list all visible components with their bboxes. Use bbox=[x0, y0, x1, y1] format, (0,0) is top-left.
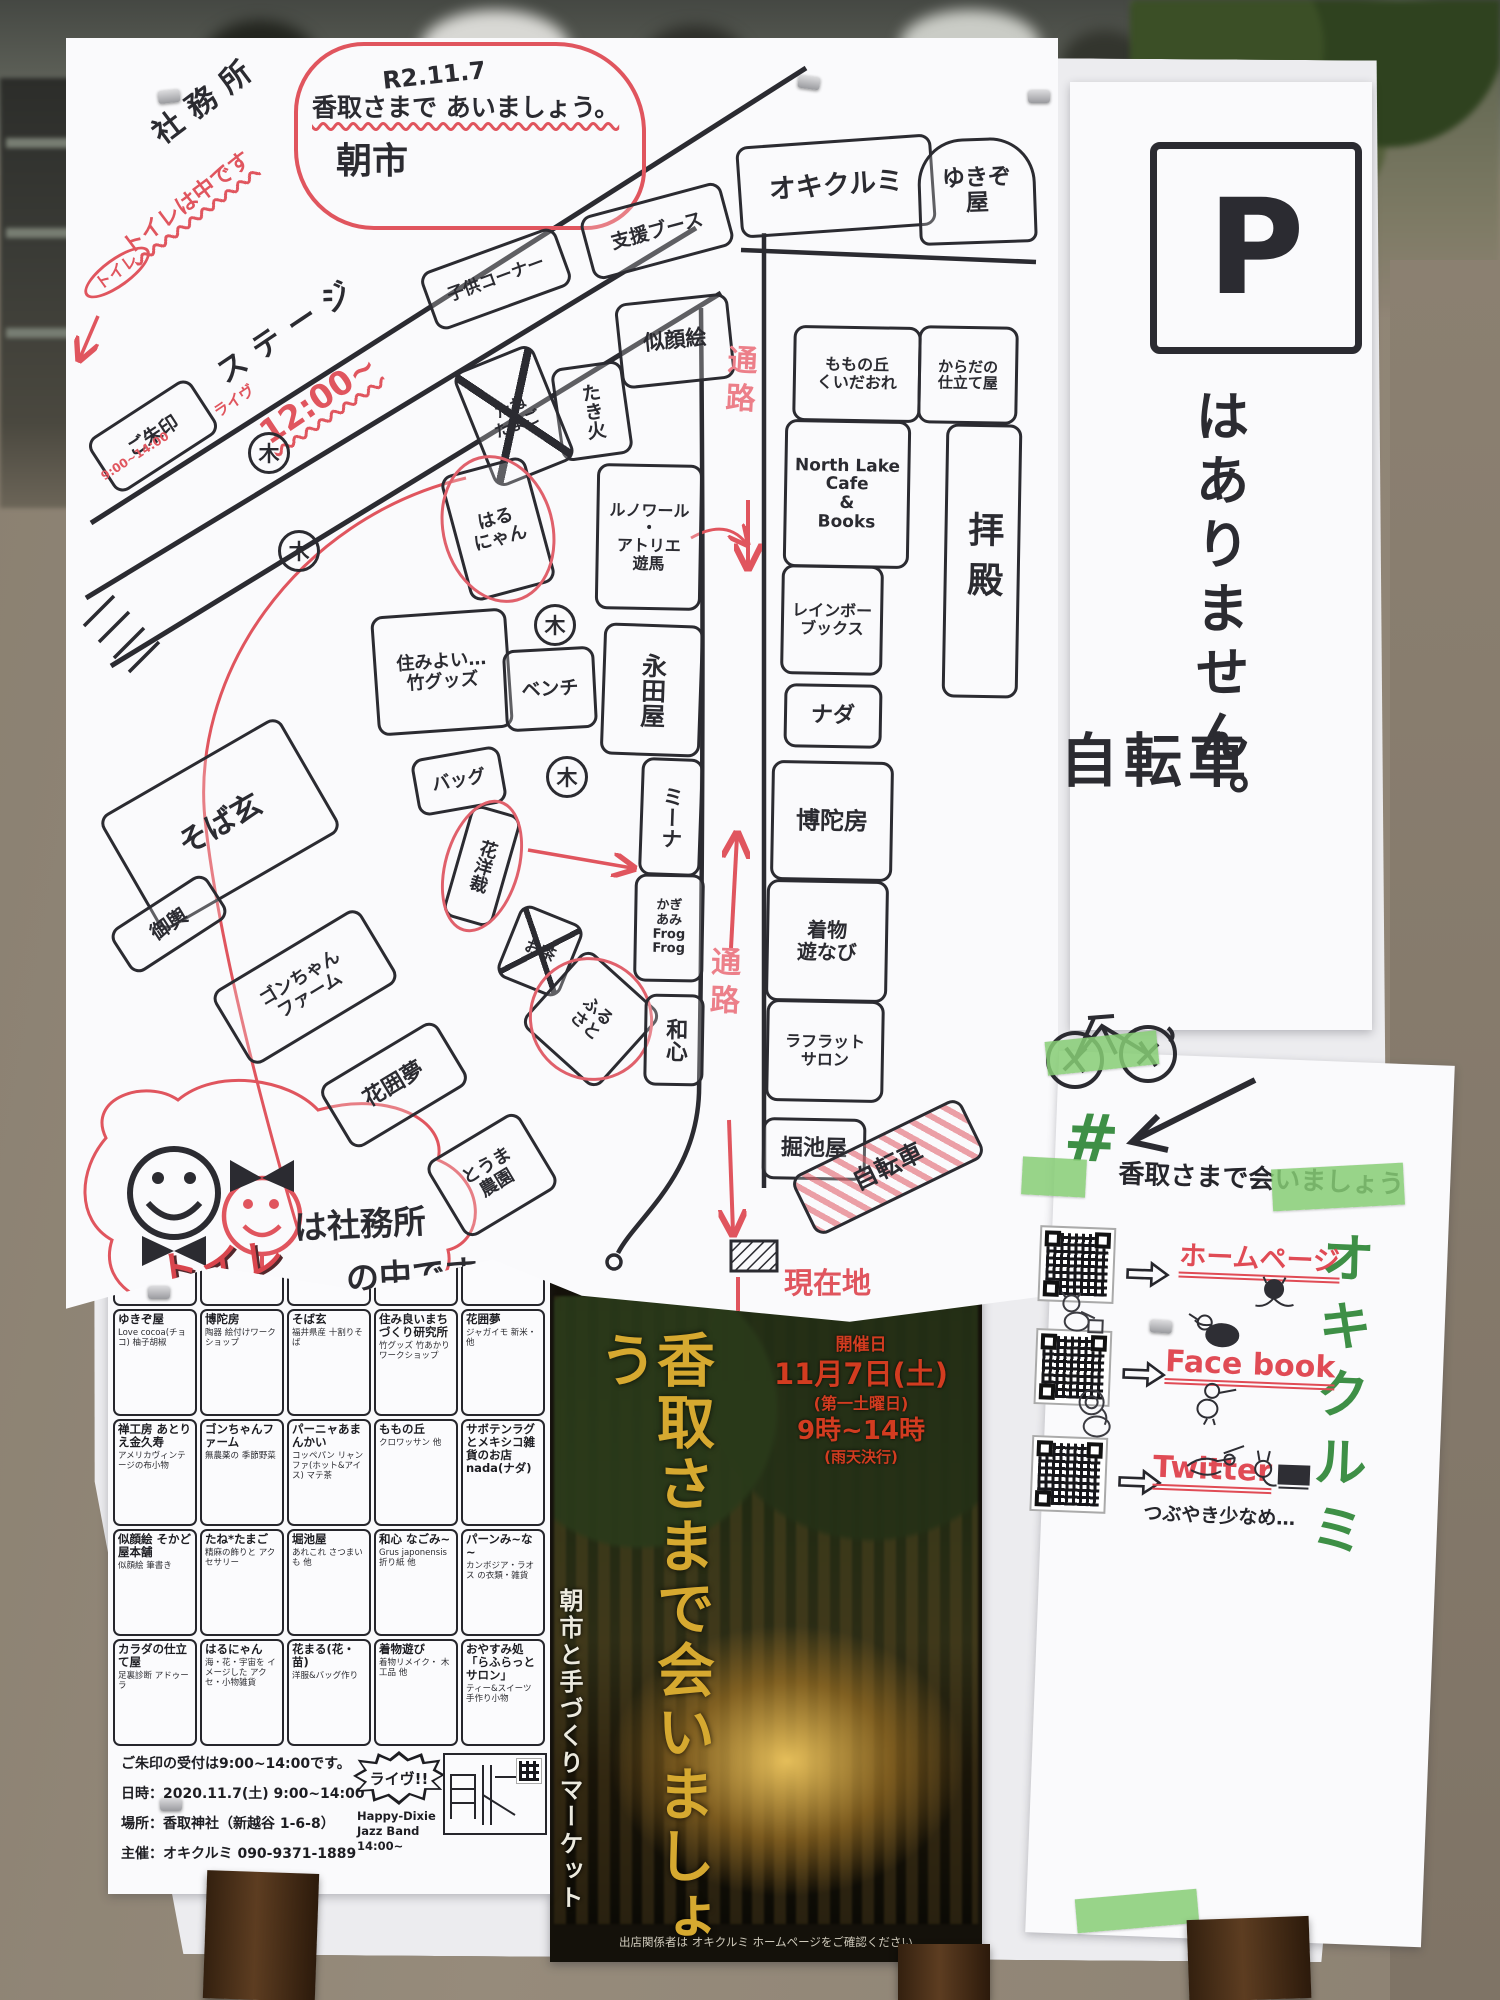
metal-pin bbox=[148, 1286, 170, 1299]
qr-code bbox=[1029, 1435, 1108, 1514]
map-stall: North Lake Cafe & Books bbox=[783, 419, 912, 569]
map-stall: ももの丘 くいだおれ bbox=[792, 325, 922, 423]
map-note: 通路 bbox=[720, 343, 755, 421]
vendor-desc: 足裏診断 アドゥーラ bbox=[118, 1671, 192, 1691]
vendor-desc: クロワッサン 他 bbox=[379, 1438, 453, 1448]
vendor-desc: アメリカヴィンテージの布小物 bbox=[118, 1451, 192, 1471]
no-parking-note: P はありません。 自転車 bbox=[1070, 82, 1372, 1030]
metal-pin bbox=[157, 89, 180, 104]
map-stall: はる にゃん bbox=[439, 455, 558, 603]
vendor-name: ももの丘 bbox=[379, 1423, 453, 1436]
vendor-cell: 着物遊び着物リメイク・ 木工品 他 bbox=[374, 1639, 458, 1746]
map-note: 現在地 bbox=[784, 1268, 871, 1298]
event-subtitle: 朝市 bbox=[336, 132, 628, 184]
live-label: ライヴ!! bbox=[357, 1755, 441, 1801]
violin-crocodile-doodle-icon bbox=[1183, 1436, 1249, 1486]
flute-bird-doodle-icon bbox=[1181, 1378, 1239, 1428]
vendor-name: 堀池屋 bbox=[292, 1533, 366, 1546]
vendor-name: 似顔絵 そかど屋本舗 bbox=[118, 1533, 192, 1559]
map-stall: とうま 農園 bbox=[423, 1109, 561, 1240]
vendor-cell: パーニャあまんかいコッペパン リャンファ(ホット&アイス) マテ茶 bbox=[287, 1419, 371, 1526]
vendor-name: サボテンラグとメキシコ雑貨のお店 nada(ナダ) bbox=[466, 1423, 540, 1475]
vendor-cell: サボテンラグとメキシコ雑貨のお店 nada(ナダ) bbox=[461, 1419, 545, 1526]
map-stall: ゴンちゃん ファーム bbox=[209, 906, 401, 1068]
vendor-cell: 禅工房 あとりえ金久寿アメリカヴィンテージの布小物 bbox=[113, 1419, 197, 1526]
tree-mark: 木 bbox=[248, 432, 290, 474]
trumpet-animal-doodle-icon bbox=[1186, 1304, 1250, 1356]
vendor-cell: 堀池屋あれこれ さつまいも 他 bbox=[287, 1529, 371, 1636]
map-title-cloud: R2.11.7 香取さまで あいましょう。 朝市 bbox=[294, 42, 646, 230]
vendor-name: 着物遊び bbox=[379, 1643, 453, 1656]
poster-date-line: (雨天決行) bbox=[758, 1448, 964, 1468]
footer-line: 日時：2020.11.7(土) 9:00~14:00 bbox=[121, 1783, 365, 1803]
vendor-cell: 和心 なごみ~Grus japonensis 折り紙 他 bbox=[374, 1529, 458, 1636]
vendor-name: たね*たまご bbox=[205, 1533, 279, 1546]
hand-drawn-map: R2.11.7 香取さまで あいましょう。 朝市 子供コーナー支援ブースオキクル… bbox=[66, 38, 1058, 1340]
map-stall: ラフラット サロン bbox=[765, 999, 885, 1103]
vendor-desc: カンボジア・ラオス の衣類・雑貨 bbox=[466, 1561, 540, 1581]
tree-mark: 木 bbox=[278, 530, 320, 572]
vendor-cell: ゴンちゃんファーム無農薬の 季節野菜 bbox=[200, 1419, 284, 1526]
board-leg-middle bbox=[898, 1944, 990, 2000]
dancing-cat-doodle-icon bbox=[1245, 1272, 1303, 1324]
poster-date-line: (第一土曜日) bbox=[758, 1394, 964, 1415]
board-leg-left bbox=[203, 1870, 319, 2000]
vendor-desc: Love cocoa(チョコ) 柚子胡椒 bbox=[118, 1328, 192, 1348]
tree-mark: 木 bbox=[546, 756, 588, 798]
vendor-name: そば玄 bbox=[292, 1313, 366, 1326]
vendor-name: パーニャあまんかい bbox=[292, 1423, 366, 1449]
vendor-name: 博陀房 bbox=[205, 1313, 279, 1326]
vendor-desc: 無農薬の 季節野菜 bbox=[205, 1451, 279, 1461]
live-band: Happy-Dixie Jazz Band 14:00~ bbox=[357, 1809, 436, 1854]
tree-mark: 木 bbox=[534, 604, 576, 646]
vendor-cell: おやすみ処 「らふらっとサロン」ティー&スイーツ 手作り小物 bbox=[461, 1639, 545, 1746]
vendor-desc: ティー&スイーツ 手作り小物 bbox=[466, 1684, 540, 1704]
vendor-name: はるにゃん bbox=[205, 1643, 279, 1656]
metal-pin bbox=[1150, 1319, 1173, 1334]
poster-date-line: 9時~14時 bbox=[758, 1415, 964, 1449]
vendor-name: 花囲夢 bbox=[466, 1313, 540, 1326]
poster-title: 香取さまで会いましょう bbox=[594, 1330, 710, 1954]
footer-line: ご朱印の受付は9:00~14:00です。 bbox=[121, 1753, 351, 1773]
mini-qr-code bbox=[516, 1758, 542, 1784]
map-stall: ベンチ bbox=[502, 646, 598, 733]
map-stall: ミーナ bbox=[638, 757, 704, 877]
green-tape bbox=[1021, 1156, 1087, 1197]
piano-rabbit-doodle-icon bbox=[1248, 1446, 1316, 1502]
vendor-cell: ももの丘クロワッサン 他 bbox=[374, 1419, 458, 1526]
vendor-desc: あれこれ さつまいも 他 bbox=[292, 1548, 366, 1568]
vendor-desc: 精麻の飾りと アクセサリー bbox=[205, 1548, 279, 1568]
event-date: R2.11.7 bbox=[381, 41, 629, 95]
vendor-cell: 花囲夢ジャガイモ 新米・他 bbox=[461, 1309, 545, 1416]
map-stall: レインボー ブックス bbox=[780, 564, 884, 676]
map-note: トイレ bbox=[77, 238, 157, 307]
drummer-animal-doodle-icon bbox=[1050, 1289, 1110, 1343]
vendor-cell: 花まる(花・苗)洋服&バッグ作り bbox=[287, 1639, 371, 1746]
poster-subtitle: 朝市と手づくりマーケット bbox=[552, 1588, 587, 1928]
vendor-cell: はるにゃん海・花・宇宙を イメージした アクセ・小物雑貨 bbox=[200, 1639, 284, 1746]
vendor-desc: 福井県産 十割りそば bbox=[292, 1328, 366, 1348]
vendor-name: おやすみ処 「らふらっとサロン」 bbox=[466, 1643, 540, 1682]
vendor-cell: ゆきぞ屋Love cocoa(チョコ) 柚子胡椒 bbox=[113, 1309, 197, 1416]
vendor-desc: 竹グッズ 竹あかりワークショップ bbox=[379, 1341, 453, 1361]
vendor-name: 花まる(花・苗) bbox=[292, 1643, 366, 1669]
map-stall: 拝殿 bbox=[942, 423, 1023, 698]
parking-letter: P bbox=[1150, 142, 1362, 354]
vendor-name: カラダの仕立て屋 bbox=[118, 1643, 192, 1669]
vendor-desc: コッペパン リャンファ(ホット&アイス) マテ茶 bbox=[292, 1451, 366, 1481]
vendor-name: ゴンちゃんファーム bbox=[205, 1423, 279, 1449]
map-stall: 永田屋 bbox=[600, 622, 705, 757]
vendor-cell: たね*たまご精麻の飾りと アクセサリー bbox=[200, 1529, 284, 1636]
map-stall: ルノワール ・ アトリエ 遊馬 bbox=[595, 463, 704, 611]
vendor-cell: カラダの仕立て屋足裏診断 アドゥーラ bbox=[113, 1639, 197, 1746]
vendor-footer: ご朱印の受付は9:00~14:00です。日時：2020.11.7(土) 9:00… bbox=[113, 1751, 545, 1909]
map-stall: 博陀房 bbox=[770, 760, 894, 882]
map-stall: 着物 遊なび bbox=[765, 879, 889, 1003]
metal-pin bbox=[1028, 90, 1050, 103]
map-stall: オキクルミ bbox=[735, 133, 937, 238]
map-stall: 似顔絵 bbox=[614, 292, 736, 389]
map-note: ライヴ bbox=[211, 383, 257, 421]
vendor-cell: そば玄福井県産 十割りそば bbox=[287, 1309, 371, 1416]
vendor-cell: パーンみ~な~カンボジア・ラオス の衣類・雑貨 bbox=[461, 1529, 545, 1636]
map-stall: 和心 bbox=[643, 993, 705, 1086]
footer-line: 主催：オキクルミ 090-9371-1889 bbox=[121, 1843, 356, 1863]
map-stall: 住みよい… 竹グッズ bbox=[370, 607, 514, 736]
board-leg-right bbox=[1187, 1916, 1312, 2000]
metal-pin bbox=[160, 1798, 182, 1811]
poster-date-line: 11月7日(土) bbox=[758, 1356, 964, 1394]
poster-date-block: 開催日11月7日(土)(第一土曜日)9時~14時(雨天決行) bbox=[758, 1334, 964, 1468]
vendor-cell: 住み良いまちづくり研究所竹グッズ 竹あかりワークショップ bbox=[374, 1309, 458, 1416]
footer-line: 場所：香取神社（新越谷 1-6-8） bbox=[121, 1813, 335, 1833]
bicycle-icon bbox=[1020, 988, 1300, 1178]
map-note: は社務所 bbox=[293, 1205, 427, 1247]
vendor-name: 禅工房 あとりえ金久寿 bbox=[118, 1423, 192, 1449]
map-stall: 花囲夢 bbox=[317, 1018, 472, 1151]
vendor-name: 和心 なごみ~ bbox=[379, 1533, 453, 1546]
event-title: 香取さまで あいましょう。 bbox=[312, 88, 628, 124]
poster-date-line: 開催日 bbox=[758, 1334, 964, 1356]
vendor-desc: 似顔絵 筆書き bbox=[118, 1561, 192, 1571]
vendor-desc: 陶器 絵付けワークショップ bbox=[205, 1328, 279, 1348]
map-stall: 子供コーナー bbox=[418, 225, 575, 333]
vendor-name: パーンみ~な~ bbox=[466, 1533, 540, 1559]
bicycle-label: 自転車 bbox=[1060, 714, 1252, 798]
vendor-cell: 博陀房陶器 絵付けワークショップ bbox=[200, 1309, 284, 1416]
vendor-cell: 似顔絵 そかど屋本舗似顔絵 筆書き bbox=[113, 1529, 197, 1636]
map-note: 通路 bbox=[705, 945, 739, 1022]
map-stall: ゆきぞ 屋 bbox=[916, 136, 1038, 246]
map-stall: 花洋裁 bbox=[441, 803, 523, 929]
arrow-right-icon bbox=[1124, 1259, 1171, 1293]
mini-map bbox=[443, 1753, 547, 1835]
map-stall: かぎ あみ Frog Frog bbox=[633, 873, 705, 982]
map-note: トイレは中です bbox=[119, 148, 256, 259]
map-stall: ナダ bbox=[783, 683, 882, 749]
photo-scene: R2.11.7 香取さまで あいましょう。 朝市 子供コーナー支援ブースオキクル… bbox=[0, 0, 1500, 2000]
vendor-desc: 海・花・宇宙を イメージした アクセ・小物雑貨 bbox=[205, 1658, 279, 1688]
sns-link-note: つぶやき少なめ… bbox=[1143, 1498, 1296, 1531]
vendor-desc: Grus japonensis 折り紙 他 bbox=[379, 1548, 453, 1568]
vendor-name: 住み良いまちづくり研究所 bbox=[379, 1313, 453, 1339]
sax-lion-doodle-icon bbox=[1066, 1381, 1128, 1443]
vendor-desc: 着物リメイク・ 木工品 他 bbox=[379, 1658, 453, 1678]
vendor-desc: ジャガイモ 新米・他 bbox=[466, 1328, 540, 1348]
live-burst: ライヴ!! bbox=[353, 1751, 445, 1805]
map-stall: からだの 仕立て屋 bbox=[917, 325, 1019, 425]
vendor-desc: 洋服&バッグ作り bbox=[292, 1671, 366, 1681]
green-tape bbox=[1271, 1163, 1405, 1212]
vendor-name: ゆきぞ屋 bbox=[118, 1313, 192, 1326]
